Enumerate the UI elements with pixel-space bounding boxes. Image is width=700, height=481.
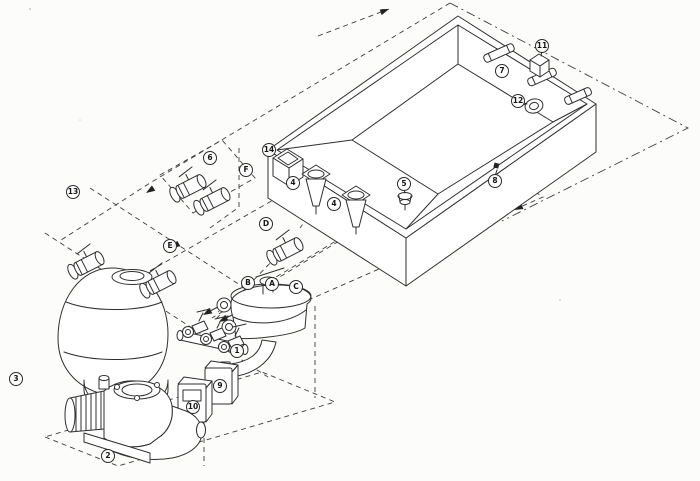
junction-box bbox=[530, 51, 549, 77]
shut-off-valve bbox=[261, 227, 306, 266]
diagram-canvas bbox=[0, 0, 700, 481]
multiport-valve bbox=[217, 268, 311, 379]
pool-installation-diagram: 12344567891011121314ABCDEF bbox=[0, 0, 700, 481]
control-box-window bbox=[183, 390, 201, 401]
shut-off-valve bbox=[164, 164, 209, 203]
pool-basin bbox=[268, 16, 596, 286]
